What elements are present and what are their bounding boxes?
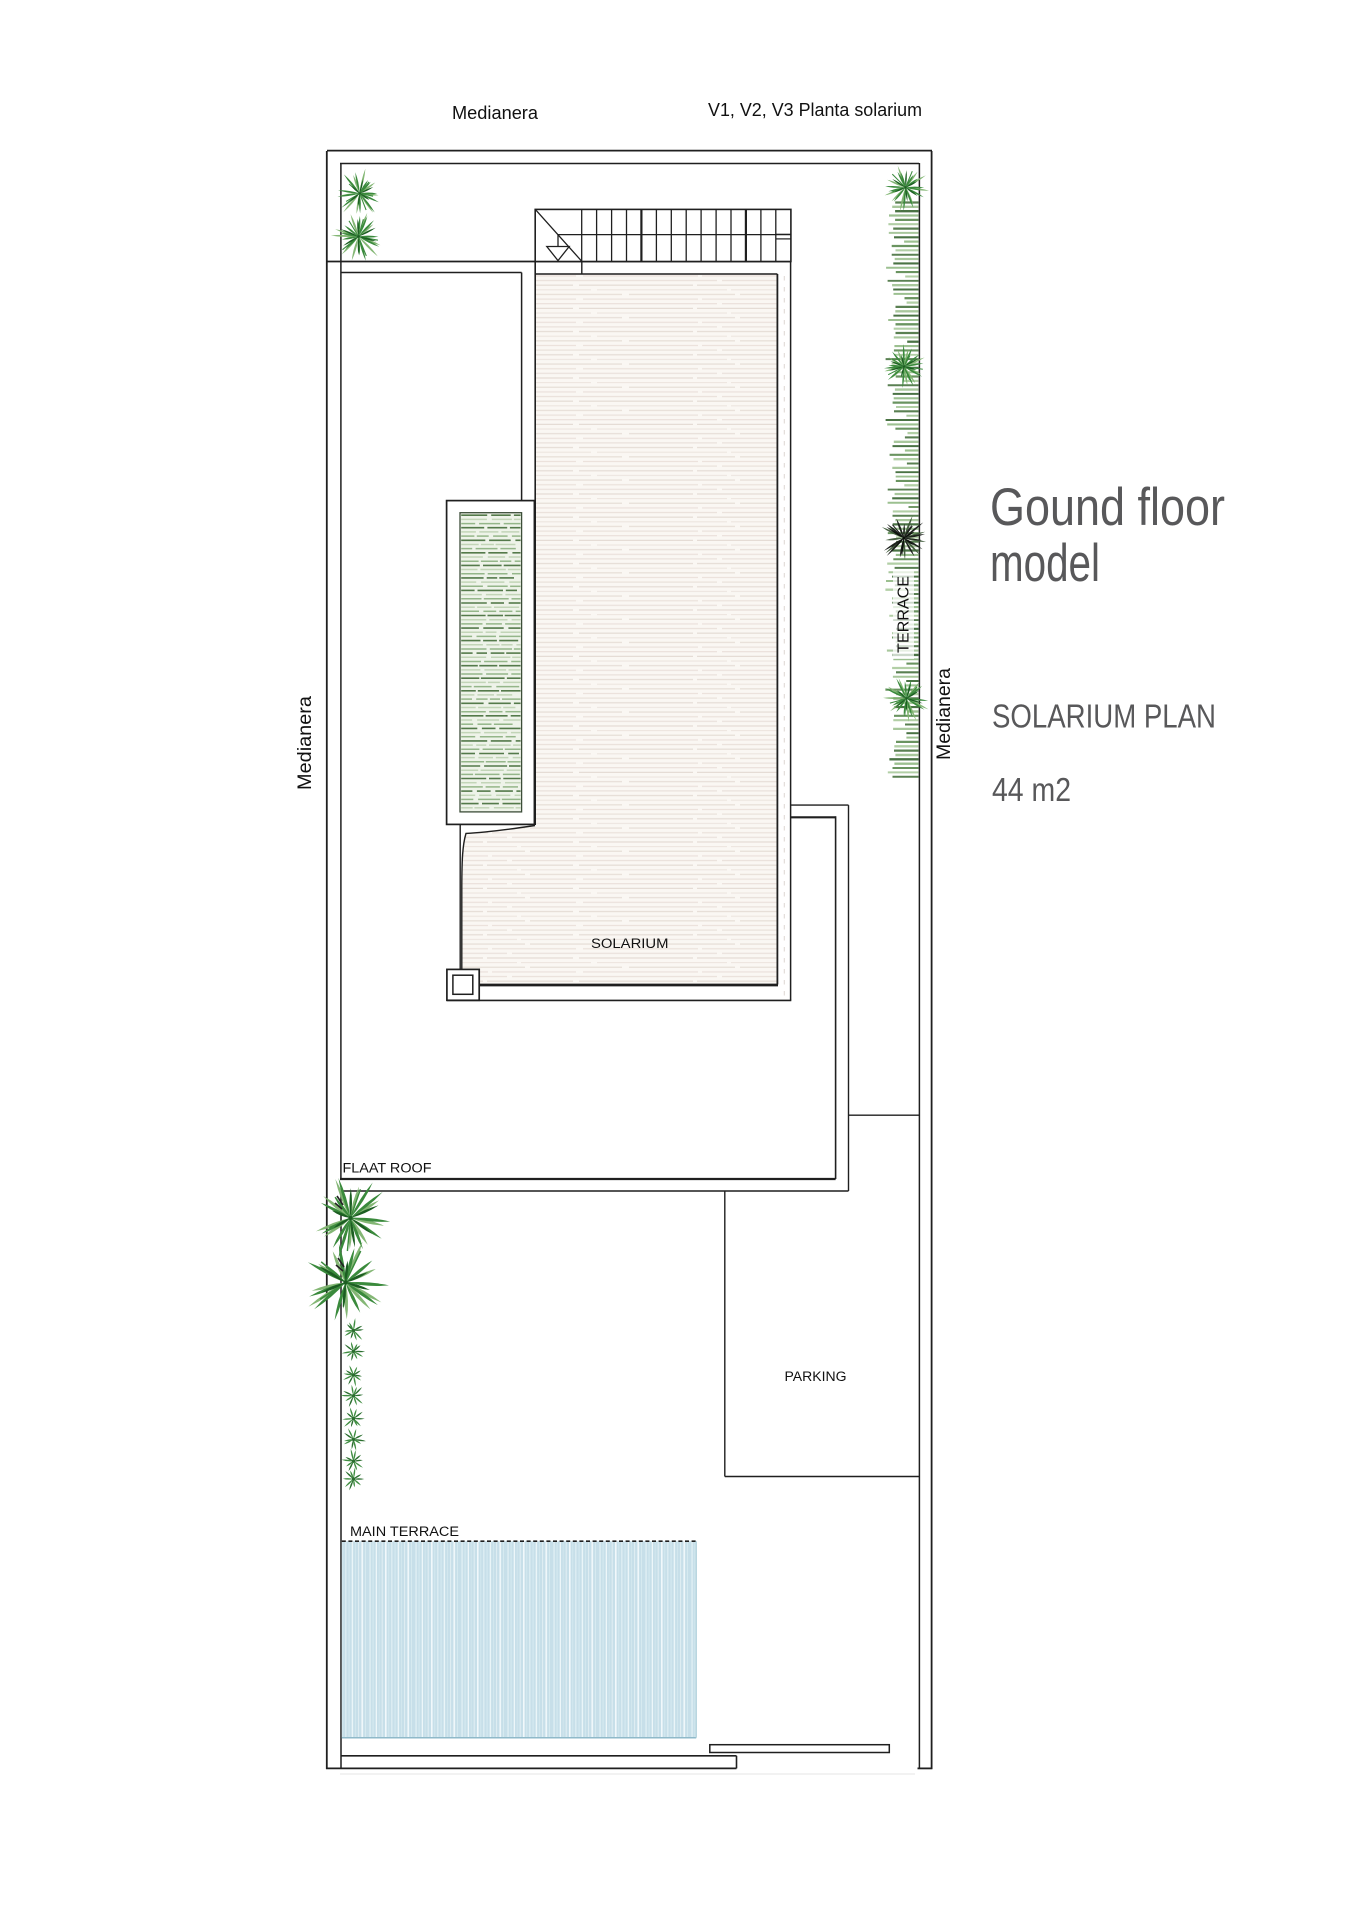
svg-text:model: model <box>990 534 1100 593</box>
svg-text:SOLARIUM: SOLARIUM <box>591 936 669 951</box>
svg-text:SOLARIUM PLAN: SOLARIUM PLAN <box>992 699 1216 736</box>
svg-text:PARKING: PARKING <box>785 1369 847 1384</box>
svg-text:TERRACE: TERRACE <box>896 576 913 653</box>
svg-text:Medianera: Medianera <box>934 668 955 760</box>
svg-text:Medianera: Medianera <box>295 696 316 790</box>
svg-text:Medianera: Medianera <box>452 102 539 123</box>
svg-text:MAIN TERRACE: MAIN TERRACE <box>350 1524 459 1539</box>
svg-text:Gound floor: Gound floor <box>990 478 1225 537</box>
svg-text:V1, V2, V3 Planta solarium: V1, V2, V3 Planta solarium <box>708 99 922 120</box>
svg-text:FLAAT ROOF: FLAAT ROOF <box>343 1161 432 1176</box>
svg-text:44 m2: 44 m2 <box>992 771 1071 808</box>
